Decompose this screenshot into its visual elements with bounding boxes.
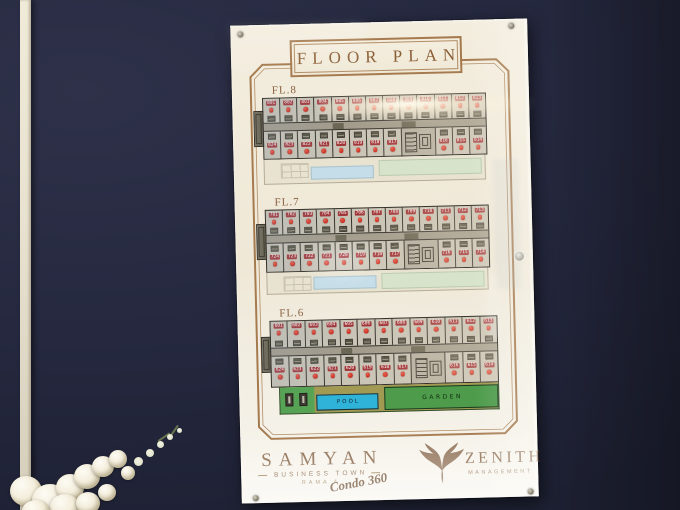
stair-elevator-core [411,353,446,384]
unit-704: 704 [316,209,334,233]
unit-number-chip: 709 [406,209,416,214]
amenity-band: POOL GARDEN [279,382,500,414]
furniture-mark [270,228,278,234]
furniture-mark [407,224,415,230]
sign-title: FLOOR PLAN [291,45,462,69]
unit-822: 822 [297,131,315,158]
status-dot-icon [286,107,291,112]
unit-number-chip: 823 [284,142,294,147]
unit-724: 724 [267,243,284,271]
status-dot-icon [383,372,388,377]
floor-plan-fl8: FL.8 80180280380480580680780880981081181… [262,92,488,184]
unit-709: 709 [402,207,420,231]
brand-area: SAMYAN BUSINESS TOWN RAMA 4 Condo 360 ZE… [240,432,538,503]
unit-number-chip: 805 [335,99,345,104]
furniture-mark [362,338,370,344]
furniture-mark [405,112,413,118]
pool: POOL [316,393,378,411]
unit-803: 803 [296,98,314,122]
stair-elevator-core [400,128,435,156]
unit-818: 818 [366,129,384,156]
unit-number-chip: 813 [472,96,482,101]
furniture-mark [371,131,379,137]
unit-609: 609 [409,318,427,344]
unit-row-bottom: 724723722721720719718717716715714 [267,238,490,271]
unit-817: 817 [383,129,401,156]
stairs-icon [408,244,420,264]
furniture-mark [356,225,364,231]
unit-number-chip: 609 [413,320,423,325]
status-dot-icon [442,145,447,150]
unit-number-chip: 620 [345,366,355,371]
unit-number-chip: 605 [344,322,354,327]
status-dot-icon [272,220,277,225]
furniture-mark [456,111,464,117]
left-elevator-core [256,223,267,259]
status-dot-icon [376,259,381,264]
furniture-mark [370,113,378,119]
unit-718: 718 [369,241,387,269]
status-dot-icon [313,374,318,379]
unit-number-chip: 607 [378,321,388,326]
unit-702: 702 [282,210,300,234]
furniture-mark [474,129,482,135]
wall-trim-strip [20,0,31,510]
status-dot-icon [461,257,466,262]
unit-number-chip: 702 [286,212,296,217]
unit-605: 605 [339,320,357,346]
unit-715: 715 [454,239,472,267]
furniture-mark [450,354,458,360]
pool-label: POOL [335,399,360,406]
furniture-mark [450,336,458,342]
status-dot-icon [356,148,361,153]
unit-number-chip: 612 [466,319,476,324]
stairs-icon [405,132,417,152]
unit-813: 813 [468,93,486,117]
unit-number-chip: 613 [483,318,493,323]
unit-number-chip: 718 [373,252,383,257]
status-dot-icon [365,372,370,377]
status-dot-icon [364,328,369,333]
flower-bloom [121,466,135,480]
flower-bloom [76,492,100,510]
dash-ornament [258,475,267,476]
unit-number-chip: 707 [372,210,382,215]
furniture-mark [442,241,450,247]
unit-614: 614 [480,351,498,381]
roof-blue-area [311,165,374,180]
unit-703: 703 [299,210,317,234]
zenith-name: ZENITH [465,448,544,468]
unit-number-chip: 722 [304,254,314,259]
status-dot-icon [393,259,398,264]
roof-green-area [381,271,484,290]
status-dot-icon [304,149,309,154]
unit-number-chip: 717 [390,252,400,257]
unit-number-chip: 616 [449,363,459,368]
unit-number-chip: 822 [301,142,311,147]
unit-number-chip: 817 [387,140,397,145]
furniture-mark [473,111,481,117]
floor-label-fl6: FL.6 [279,307,304,320]
status-dot-icon [392,217,397,222]
unit-number-chip: 705 [337,211,347,216]
unit-number-chip: 602 [291,323,301,328]
furniture-mark [439,129,447,135]
furniture-mark [425,224,433,230]
unit-number-chip: 617 [398,364,408,369]
left-elevator-core [253,111,264,147]
unit-708: 708 [385,208,403,232]
status-dot-icon [273,262,278,267]
unit-717: 717 [386,241,404,269]
furniture-mark [442,223,450,229]
status-dot-icon [324,260,329,265]
unit-number-chip: 608 [396,320,406,325]
furniture-mark [271,246,279,252]
unit-number-chip: 811 [438,96,448,101]
unit-number-chip: 818 [370,140,380,145]
unit-601: 601 [270,321,287,347]
status-dot-icon [375,217,380,222]
elevator-icon [429,360,441,375]
status-dot-icon [399,328,404,333]
unit-608: 608 [392,318,410,344]
furniture-mark [328,357,336,363]
unit-number-chip: 708 [389,210,399,215]
status-dot-icon [373,147,378,152]
roof-green-area [379,158,482,177]
flower-bud [146,449,154,457]
unit-604: 604 [322,320,340,346]
furniture-mark [322,244,330,250]
unit-number-chip: 716 [441,250,451,255]
unit-610: 610 [427,318,445,344]
unit-811: 811 [434,94,452,118]
unit-number-chip: 721 [321,253,331,258]
furniture-mark [388,113,396,119]
structure-mark [281,163,309,179]
status-dot-icon [372,105,377,110]
status-dot-icon [476,145,481,150]
unit-number-chip: 710 [423,209,433,214]
unit-number-chip: 606 [361,321,371,326]
unit-711: 711 [436,206,454,230]
furniture-mark [374,243,382,249]
status-dot-icon [479,257,484,262]
unit-number-chip: 621 [327,366,337,371]
status-dot-icon [389,105,394,110]
furniture-mark [276,358,284,364]
furniture-mark [337,132,345,138]
unit-606: 606 [357,319,375,345]
unit-number-chip: 614 [484,362,494,367]
furniture-mark [305,245,313,251]
floor-plan-fl6: FL.6 60160260360460560660760860961061161… [269,315,499,415]
furniture-mark [319,132,327,138]
unit-number-chip: 615 [467,363,477,368]
unit-number-chip: 713 [475,208,485,213]
status-dot-icon [338,106,343,111]
unit-624: 624 [271,356,288,386]
furniture-mark [345,339,353,345]
floor-drawing-fl8: 801802803804805806807808809810811812813 … [262,92,487,159]
unit-number-chip: 808 [386,98,396,103]
furniture-mark [391,243,399,249]
furniture-mark [354,132,362,138]
samyan-name: SAMYAN [249,448,389,471]
unit-816: 816 [434,127,452,154]
unit-723: 723 [283,243,301,271]
status-dot-icon [294,330,299,335]
unit-number-chip: 622 [310,367,320,372]
unit-713: 713 [471,205,489,229]
flower-bud [177,428,182,433]
flower-bloom [98,484,116,501]
structure-mark [283,276,311,292]
floor-drawing-fl6: 601602603604605606607608609610611612613 … [269,315,499,388]
furniture-mark [275,341,283,347]
unit-row-bottom: 824823822821820819818817816815814 [264,126,487,158]
unit-number-chip: 723 [287,254,297,259]
status-dot-icon [348,373,353,378]
unit-number-chip: 809 [403,97,413,102]
unit-720: 720 [334,242,352,270]
unit-620: 620 [340,355,358,385]
furniture-mark [302,133,310,139]
status-dot-icon [434,327,439,332]
unit-814: 814 [469,126,487,153]
floor-label-fl8: FL.8 [272,84,297,97]
unit-615: 615 [462,352,480,382]
furniture-mark [302,115,310,121]
status-dot-icon [306,219,311,224]
unit-612: 612 [462,317,480,343]
status-dot-icon [409,216,414,221]
status-dot-icon [390,147,395,152]
unit-613: 613 [479,316,497,342]
status-dot-icon [486,325,491,330]
status-dot-icon [458,103,463,108]
unit-808: 808 [382,96,400,120]
unit-806: 806 [348,96,366,120]
unit-number-chip: 815 [456,138,466,143]
unit-number-chip: 714 [476,250,486,255]
unit-number-chip: 801 [266,101,276,106]
unit-707: 707 [368,208,386,232]
furniture-mark [287,227,295,233]
unit-607: 607 [374,319,392,345]
unit-710: 710 [419,207,437,231]
unit-number-chip: 611 [448,319,458,324]
furniture-mark [339,226,347,232]
status-dot-icon [451,326,456,331]
zenith-subtitle: MANAGEMENT [468,468,533,476]
furniture-mark [398,355,406,361]
furniture-mark [415,337,423,343]
unit-number-chip: 807 [369,98,379,103]
unit-number-chip: 623 [292,367,302,372]
furniture-mark [439,111,447,117]
flower-bud [167,434,173,440]
unit-number-chip: 806 [352,99,362,104]
unit-623: 623 [288,356,306,386]
furniture-mark [459,241,467,247]
furniture-mark [293,340,301,346]
unit-number-chip: 821 [319,141,329,146]
status-dot-icon [381,328,386,333]
furniture-mark [353,114,361,120]
unit-716: 716 [437,239,455,267]
status-dot-icon [444,257,449,262]
furniture-mark [373,225,381,231]
unit-617: 617 [393,353,411,383]
unit-621: 621 [323,355,341,385]
unit-number-chip: 812 [455,96,465,101]
furniture-mark [357,243,365,249]
left-elevator-core [261,336,272,372]
unit-number-chip: 603 [309,323,319,328]
unit-number-chip: 720 [339,253,349,258]
status-dot-icon [269,108,274,113]
status-dot-icon [347,329,352,334]
status-dot-icon [452,370,457,375]
garden: GARDEN [384,384,499,410]
status-dot-icon [460,215,465,220]
flower-bud [134,457,143,466]
furniture-mark [346,357,354,363]
unit-number-chip: 803 [300,100,310,105]
floor-plan-fl7: FL.7 70170270370470570670770870971071171… [265,204,491,294]
status-dot-icon [322,148,327,153]
pool-deck [280,387,315,414]
unit-number-chip: 601 [274,323,284,328]
unit-number-chip: 618 [380,365,390,370]
floor-plan-sign-board: FLOOR PLAN FL.8 801802803804805806807808… [230,18,539,503]
unit-719: 719 [351,241,369,269]
title-box: FLOOR PLAN [290,36,463,77]
unit-619: 619 [358,354,376,384]
status-dot-icon [329,329,334,334]
status-dot-icon [342,260,347,265]
unit-number-chip: 610 [431,320,441,325]
status-dot-icon [303,107,308,112]
furniture-mark [477,241,485,247]
status-dot-icon [469,326,474,331]
flower-bloom [109,450,127,468]
furniture-mark [457,129,465,135]
furniture-mark [285,133,293,139]
status-dot-icon [321,106,326,111]
furniture-mark [467,336,475,342]
unit-706: 706 [350,208,368,232]
unit-row-bottom: 624623622621620619618617616615614 [271,351,498,387]
unit-number-chip: 820 [336,141,346,146]
unit-802: 802 [279,98,297,122]
floor-drawing-fl7: 701702703704705706707708709710711712713 … [265,204,490,272]
unit-824: 824 [264,132,281,159]
unit-number-chip: 703 [303,212,313,217]
furniture-mark [293,358,301,364]
unit-603: 603 [304,321,322,347]
unit-805: 805 [331,97,349,121]
unit-616: 616 [445,352,463,382]
unit-810: 810 [416,95,434,119]
status-dot-icon [443,215,448,220]
status-dot-icon [277,331,282,336]
garden-label: GARDEN [420,393,463,401]
unit-712: 712 [453,206,471,230]
cabana-icon [285,393,293,406]
furniture-mark [267,116,275,122]
unit-number-chip: 712 [457,208,467,213]
status-dot-icon [358,218,363,223]
unit-820: 820 [332,130,350,157]
unit-number-chip: 816 [439,138,449,143]
unit-721: 721 [317,242,335,270]
furniture-mark [288,245,296,251]
furniture-mark [322,226,330,232]
status-dot-icon [487,369,492,374]
unit-number-chip: 814 [473,138,483,143]
furniture-mark [311,358,319,364]
furniture-mark [381,356,389,362]
elevator-icon [422,246,434,261]
furniture-mark [363,356,371,362]
unit-821: 821 [314,130,332,157]
unit-618: 618 [376,354,394,384]
furniture-mark [459,223,467,229]
status-dot-icon [307,261,312,266]
status-dot-icon [295,374,300,379]
unit-602: 602 [287,321,305,347]
zenith-wings-icon [416,440,467,485]
furniture-mark [319,114,327,120]
unit-622: 622 [305,356,323,386]
wall-shadow [550,0,680,510]
unit-number-chip: 706 [355,210,365,215]
status-dot-icon [406,104,411,109]
unit-number-chip: 701 [269,213,279,218]
unit-number-chip: 719 [356,252,366,257]
unit-809: 809 [399,95,417,119]
unit-611: 611 [444,317,462,343]
furniture-mark [476,223,484,229]
unit-823: 823 [280,131,298,158]
unit-801: 801 [263,99,280,123]
furniture-mark [380,338,388,344]
unit-number-chip: 724 [270,255,280,260]
unit-number-chip: 810 [420,97,430,102]
status-dot-icon [401,372,406,377]
status-dot-icon [441,103,446,108]
photo-scene: FLOOR PLAN FL.8 801802803804805806807808… [0,0,680,510]
unit-number-chip: 824 [267,143,277,148]
furniture-mark [485,335,493,341]
unit-number-chip: 715 [458,250,468,255]
furniture-mark [397,338,405,344]
unit-701: 701 [266,210,283,234]
status-dot-icon [478,215,483,220]
unit-714: 714 [471,238,489,266]
unit-number-chip: 802 [283,100,293,105]
status-dot-icon [287,149,292,154]
status-dot-icon [330,373,335,378]
unit-705: 705 [333,209,351,233]
furniture-mark [310,340,318,346]
furniture-mark [285,115,293,121]
